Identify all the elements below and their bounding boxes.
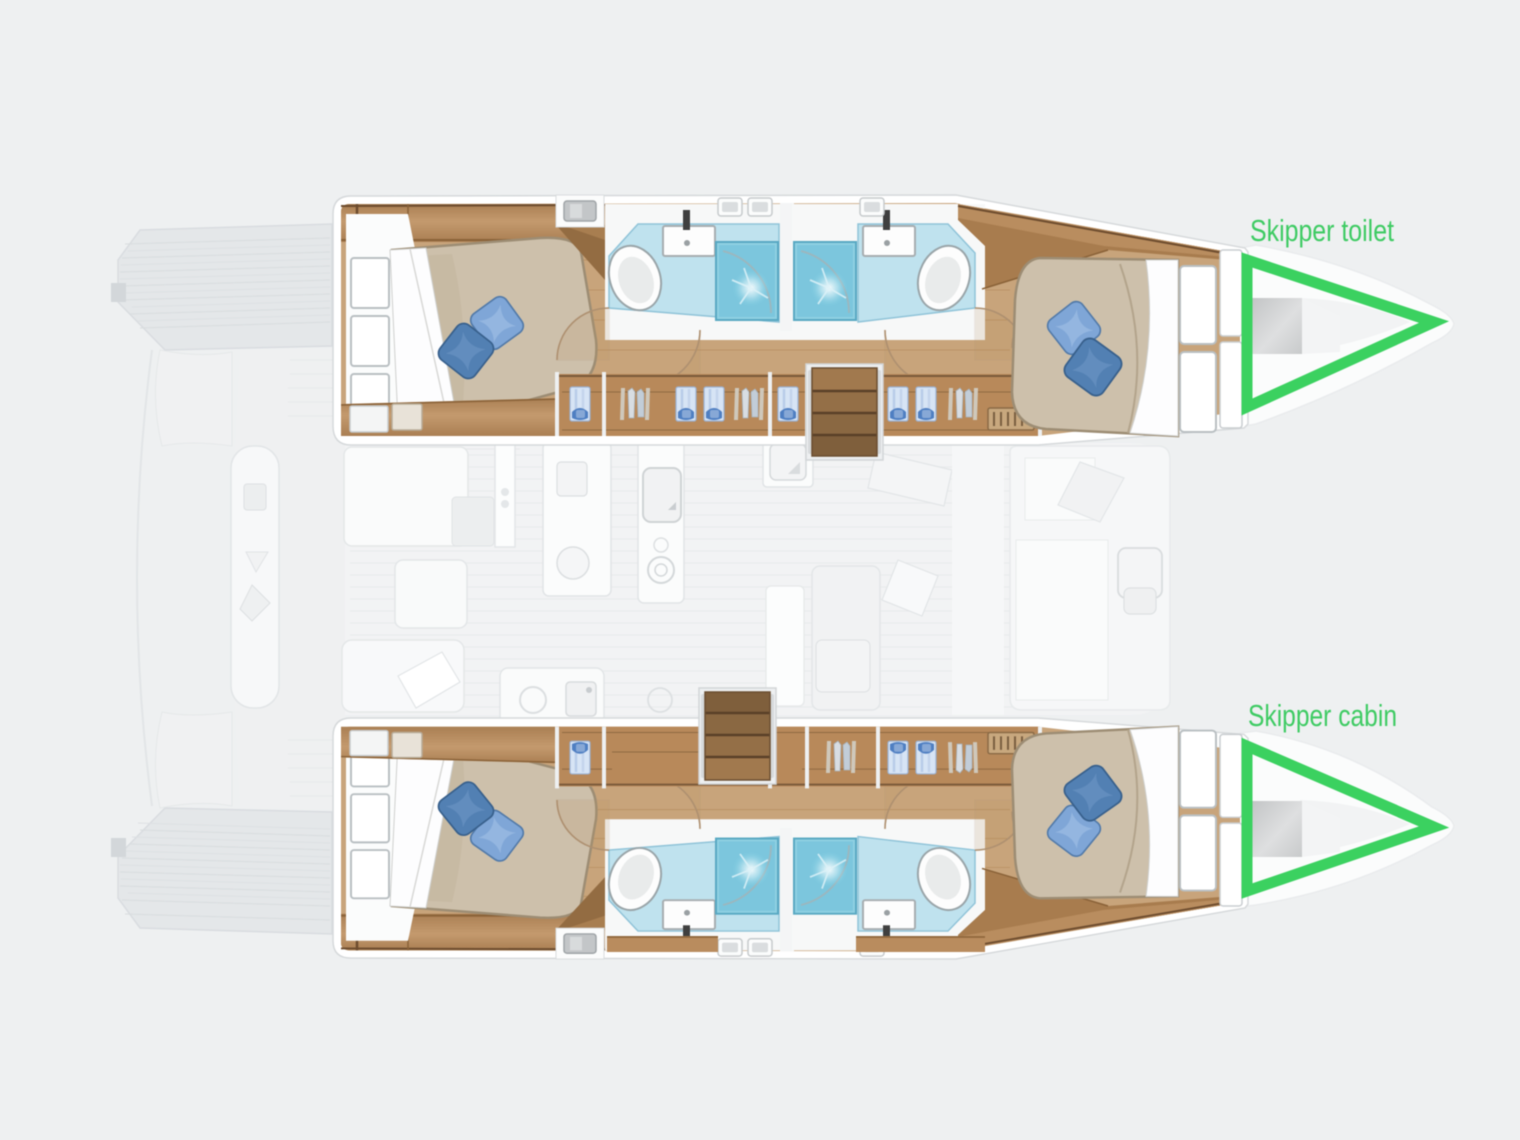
svg-text:Skipper toilet: Skipper toilet <box>1250 213 1394 248</box>
svg-text:Skipper cabin: Skipper cabin <box>1248 698 1397 733</box>
